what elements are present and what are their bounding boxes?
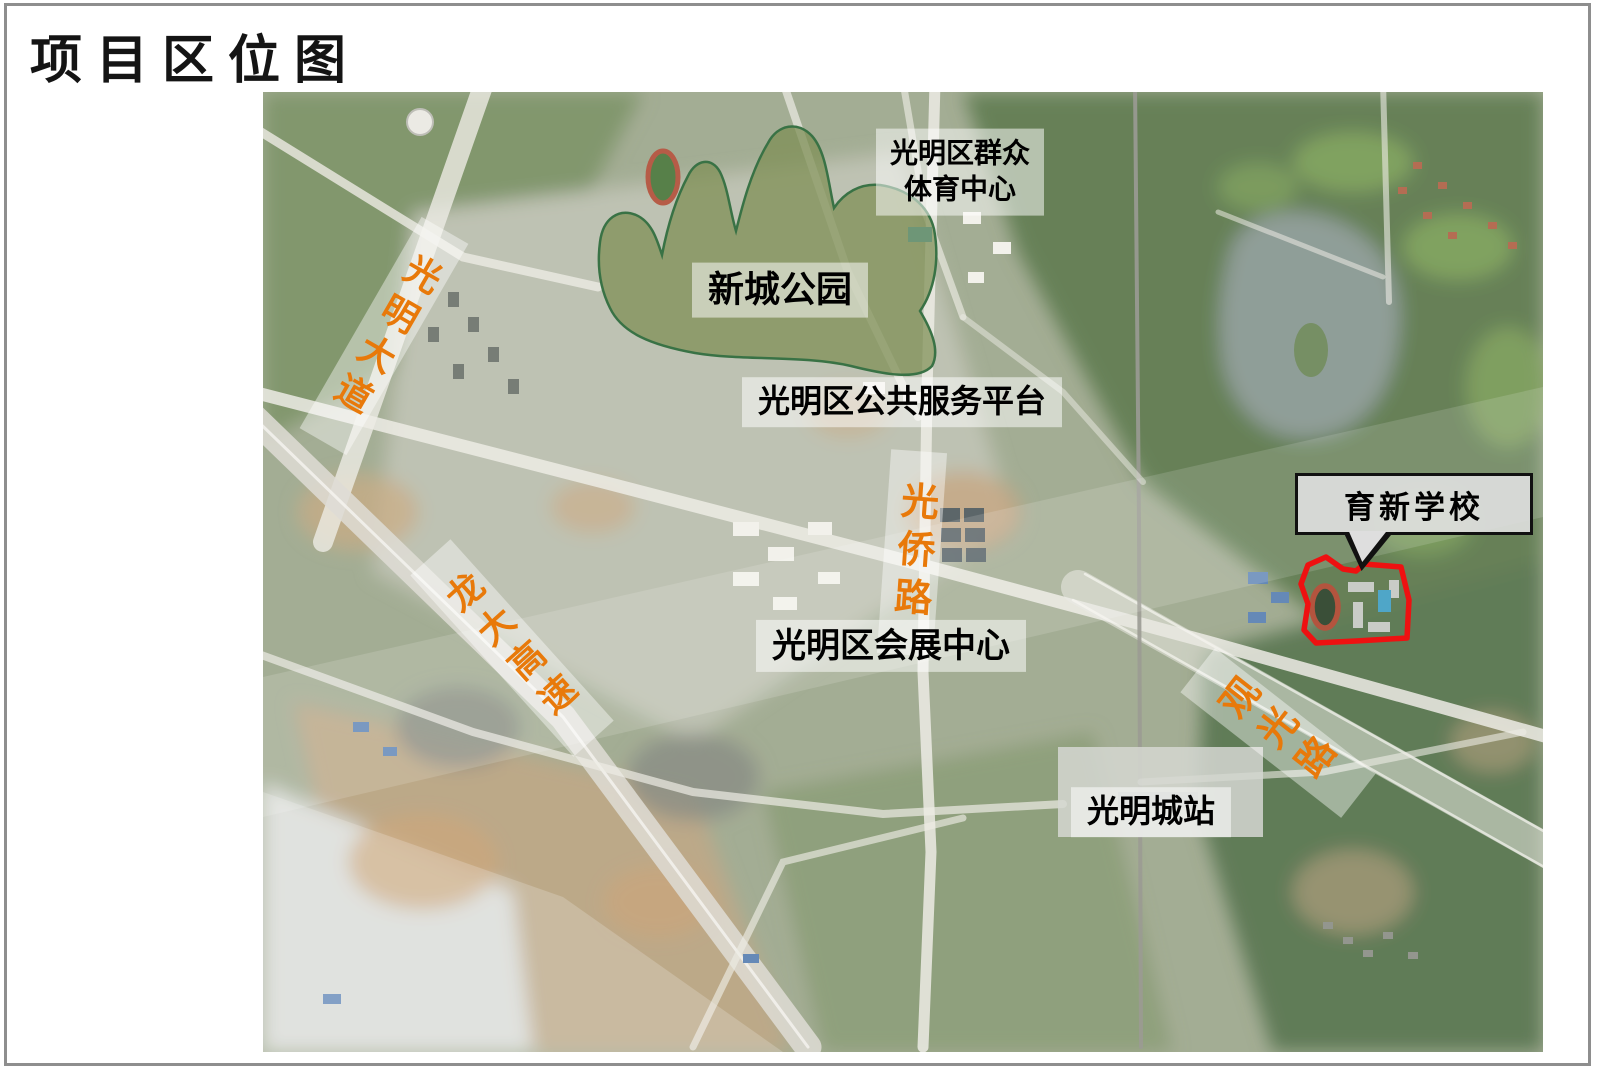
satellite-map: 光明区群众 体育中心 新城公园 光明区公共服务平台 光明区会展中心 光明城站 光… [263, 92, 1543, 1052]
map-label-sports-center: 光明区群众 体育中心 [876, 129, 1044, 216]
map-label-guangming-city-station: 光明城站 [1071, 787, 1231, 837]
map-label-public-service-platform: 光明区公共服务平台 [742, 377, 1062, 427]
school-pool [1378, 590, 1391, 612]
map-label-convention-center: 光明区会展中心 [756, 620, 1026, 672]
map-label-xincheng-park: 新城公园 [692, 263, 868, 318]
callout-yuxin-school: 育新学校 [1295, 473, 1533, 535]
callout-label: 育新学校 [1344, 482, 1484, 527]
slide-title: 项目区位图 [30, 18, 360, 93]
school-running-track [1312, 586, 1338, 628]
